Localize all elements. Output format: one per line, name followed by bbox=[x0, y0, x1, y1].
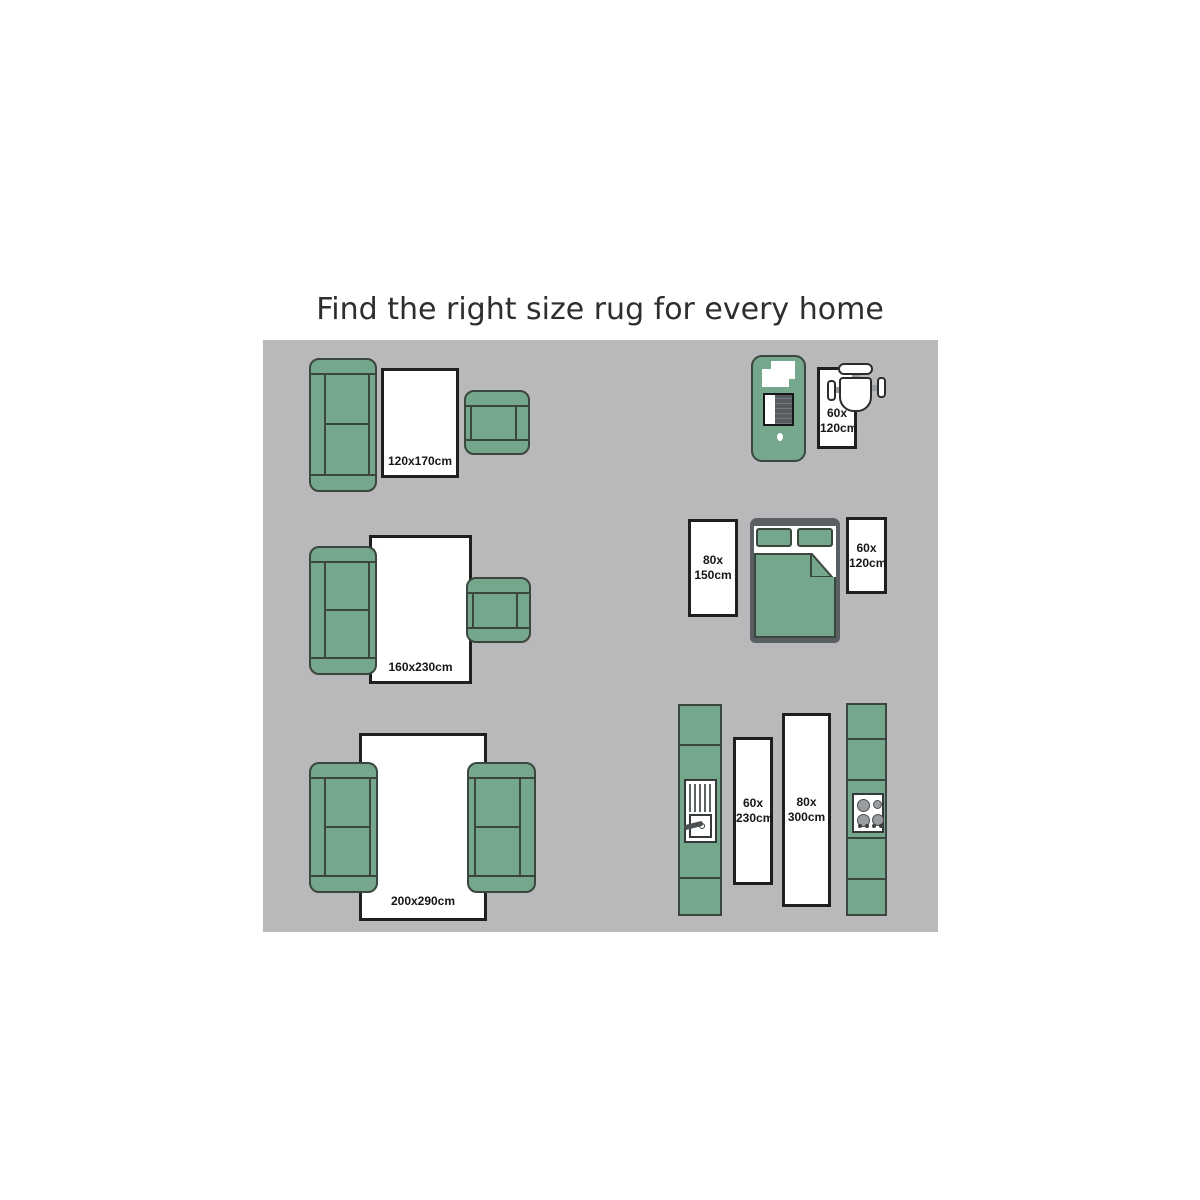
sofa-armrest-line bbox=[310, 373, 376, 375]
rug-size-label: 60x 230cm bbox=[736, 796, 770, 826]
burner bbox=[857, 799, 870, 812]
armchair-icon bbox=[464, 390, 530, 455]
armchair-armrest-line bbox=[465, 405, 529, 407]
stove-knob bbox=[872, 824, 876, 828]
sofa-cushion-divider bbox=[324, 609, 370, 611]
cabinet-divider bbox=[679, 877, 721, 879]
sofa-armrest-line bbox=[310, 561, 376, 563]
duvet bbox=[754, 553, 836, 638]
cabinet-divider bbox=[679, 744, 721, 746]
infographic-rug-size-guide: Find the right size rug for every home 1… bbox=[0, 0, 1200, 1200]
stove-knob bbox=[879, 824, 883, 828]
armchair-armrest-line bbox=[467, 627, 530, 629]
sofa-cushion-divider bbox=[324, 826, 371, 828]
armchair-icon bbox=[466, 577, 531, 643]
chair-seat bbox=[839, 377, 872, 412]
sofa-cushion-divider bbox=[324, 423, 370, 425]
sink-basin bbox=[689, 814, 712, 838]
duvet-fold-notch bbox=[810, 553, 836, 577]
bed-icon bbox=[750, 518, 840, 643]
chair-armrest bbox=[877, 377, 886, 398]
rug-size-label: 80x 150cm bbox=[691, 553, 735, 583]
sofa-icon bbox=[309, 546, 377, 675]
rug-120x170: 120x170cm bbox=[381, 368, 459, 478]
page-title: Find the right size rug for every home bbox=[0, 292, 1200, 327]
sofa-icon bbox=[467, 762, 536, 893]
pillow-icon bbox=[797, 528, 833, 547]
sofa-armrest-line bbox=[310, 657, 376, 659]
sofa-armrest-line bbox=[310, 875, 377, 877]
rug-60x120-bedroom: 60x 120cm bbox=[846, 517, 887, 594]
sink-icon bbox=[684, 779, 717, 843]
laptop-keyboard bbox=[775, 395, 792, 424]
kitchen-counter-right bbox=[846, 703, 887, 916]
paper-sheet bbox=[762, 369, 789, 387]
rug-size-label: 200x290cm bbox=[362, 894, 484, 909]
sofa-icon bbox=[309, 762, 378, 893]
armchair-armrest-line bbox=[465, 439, 529, 441]
sofa-armrest-line bbox=[310, 474, 376, 476]
duvet-fold-icon bbox=[810, 553, 836, 577]
rug-80x150: 80x 150cm bbox=[688, 519, 738, 617]
stove-icon bbox=[852, 793, 884, 833]
kitchen-counter-left bbox=[678, 704, 722, 916]
rug-size-label: 60x 120cm bbox=[849, 541, 884, 571]
rug-80x300: 80x 300cm bbox=[782, 713, 831, 907]
sofa-armrest-line bbox=[468, 875, 535, 877]
rug-size-label: 120x170cm bbox=[384, 454, 456, 469]
rug-160x230: 160x230cm bbox=[369, 535, 472, 684]
rug-size-label: 160x230cm bbox=[372, 660, 469, 675]
pillow-icon bbox=[756, 528, 792, 547]
chair-armrest bbox=[827, 380, 836, 401]
armchair-backrest-line bbox=[516, 592, 518, 629]
armchair-backrest-line bbox=[515, 405, 517, 441]
sofa-armrest-line bbox=[310, 777, 377, 779]
armchair-front-line bbox=[472, 592, 474, 629]
laptop-icon bbox=[763, 393, 794, 426]
cabinet-divider bbox=[847, 837, 886, 839]
mouse-icon bbox=[777, 433, 783, 441]
rug-size-label: 80x 300cm bbox=[785, 795, 828, 825]
cabinet-divider bbox=[847, 738, 886, 740]
cabinet-divider bbox=[847, 878, 886, 880]
burner bbox=[873, 800, 882, 809]
desk-icon bbox=[751, 355, 806, 462]
armchair-front-line bbox=[470, 405, 472, 441]
stove-knob bbox=[858, 824, 862, 828]
armchair-armrest-line bbox=[467, 592, 530, 594]
sofa-icon bbox=[309, 358, 377, 492]
chair-backrest bbox=[838, 363, 873, 375]
cabinet-divider bbox=[847, 779, 886, 781]
sofa-cushion-divider bbox=[474, 826, 521, 828]
stove-knob bbox=[865, 824, 869, 828]
rug-60x230: 60x 230cm bbox=[733, 737, 773, 885]
sink-drainboard bbox=[689, 784, 712, 812]
sofa-armrest-line bbox=[468, 777, 535, 779]
